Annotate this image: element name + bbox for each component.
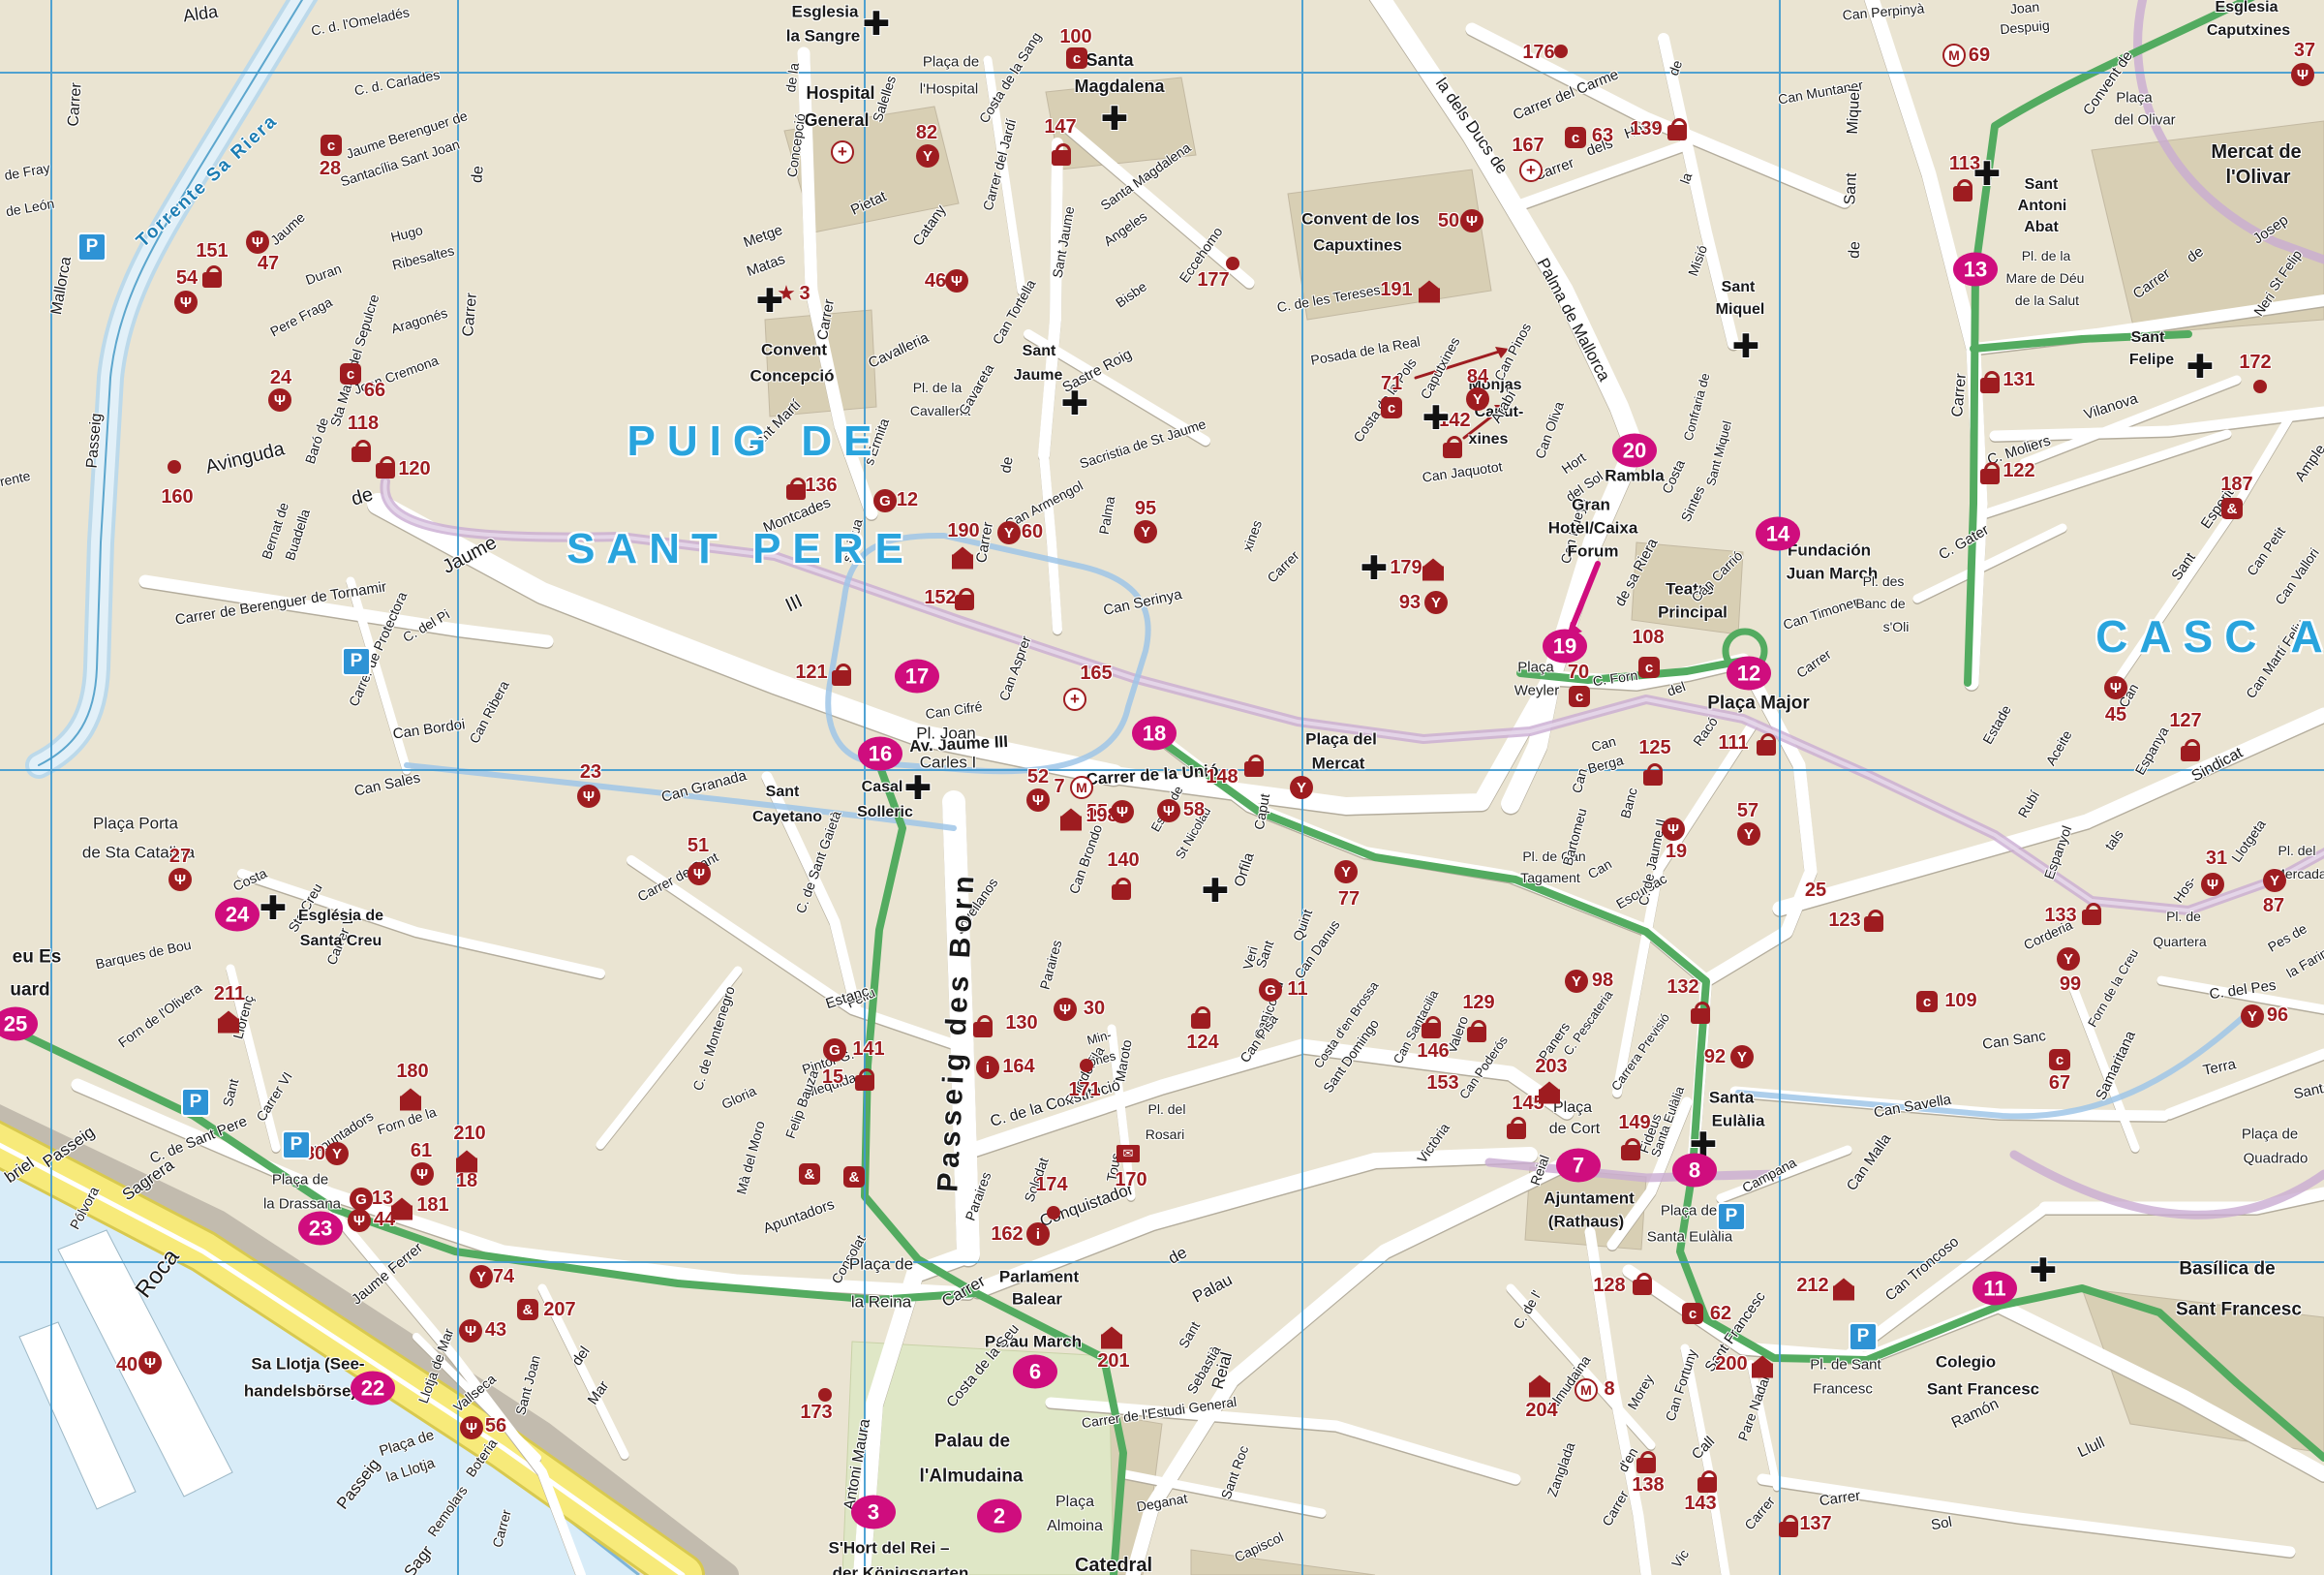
street-label-hos: Hos-: [2171, 874, 2198, 905]
poi-number-7: 7: [1054, 777, 1064, 796]
street-label-carrer: Carrer: [1819, 1489, 1861, 1509]
street-label-santa-magdalena: Santa Magdalena: [1098, 140, 1193, 212]
poi-number-63: 63: [1592, 126, 1613, 145]
house-icon: [1529, 1383, 1550, 1398]
cafe-icon: c: [1916, 991, 1938, 1012]
church-icon: ✚: [1361, 549, 1389, 588]
street-label-felip-bauza: Felip Bauza: [783, 1068, 820, 1140]
street-label-sintes: Sintes: [1678, 483, 1706, 523]
street-label-llotgeta: Llotgeta: [2229, 818, 2268, 865]
street-label-can-sanc: Can Sanc: [1981, 1029, 2046, 1052]
poi-number-172: 172: [2239, 353, 2271, 372]
poi-number-56: 56: [485, 1416, 506, 1436]
landmark-label-casal: Casal: [862, 780, 903, 795]
landmark-label-convent: Convent: [761, 342, 827, 358]
street-label-de-sa-riera: de sa Riera: [1612, 537, 1660, 609]
poi-number-121: 121: [795, 663, 827, 682]
bag-icon: [1621, 1145, 1640, 1160]
street-label-convent-de: Convent de: [2081, 48, 2135, 117]
church-icon: ✚: [1101, 100, 1129, 139]
street-label-can-brondo: Can Brondo: [1067, 822, 1105, 895]
fork-icon: Ψ: [1460, 209, 1483, 232]
wine-icon: Y: [1730, 1045, 1754, 1068]
street-label-matas: Matas: [745, 252, 787, 279]
poi-number-139: 139: [1630, 119, 1662, 139]
bag-icon: [1636, 1458, 1656, 1473]
street-label-despuig: Despuig: [2000, 18, 2050, 36]
landmark-label-antoni: Antoni: [2018, 199, 2067, 214]
med-icon: +: [1519, 159, 1543, 182]
plaza-label-mare-de-d-u: Mare de Déu: [2006, 271, 2085, 285]
street-label-can-ribera: Can Ribera: [467, 678, 511, 745]
cafe-icon: c: [1638, 657, 1660, 678]
poi-number-70: 70: [1568, 663, 1589, 682]
poi-number-152: 152: [924, 588, 956, 607]
poi-number-3: 3: [799, 284, 810, 303]
landmark-label-gran: Gran: [1572, 497, 1610, 513]
poi-number-125: 125: [1638, 738, 1670, 757]
street-label-carrer: Carrer: [66, 82, 84, 127]
poi-number-61: 61: [411, 1141, 432, 1160]
landmark-label-bas-lica-de: Basílica de: [2179, 1260, 2275, 1279]
street-label-carrer: Carrer: [1742, 1494, 1777, 1531]
street-label-can-carri: Can Carrió: [1689, 548, 1745, 604]
street-label-vic: Vic: [1669, 1547, 1691, 1570]
street-label-sant: Sant: [1843, 172, 1860, 205]
poi-number-67: 67: [2049, 1073, 2070, 1093]
street-label-de-le-n: de León: [5, 197, 55, 219]
street-label-carrera-previsi: Carrera Previsió: [1609, 1011, 1672, 1093]
poi-number-174: 174: [1035, 1175, 1067, 1194]
route-badge-24: 24: [215, 898, 260, 932]
info-icon: i: [1026, 1222, 1050, 1246]
poi-number-147: 147: [1044, 117, 1076, 137]
landmark-label-s-hort-del-rei: S'Hort del Rei –: [829, 1540, 950, 1557]
street-label-call: Call: [1690, 1435, 1718, 1463]
poi-number-46: 46: [925, 271, 946, 291]
landmark-label-santa: Santa: [1709, 1090, 1754, 1106]
plaza-label-carles-i: Carles I: [920, 755, 977, 771]
house-icon: [1752, 1364, 1773, 1378]
bag-icon: [1633, 1280, 1652, 1295]
plaza-label-la-drassana: la Drassana: [263, 1197, 341, 1212]
parking-icon: P: [342, 647, 371, 676]
street-label-rub: Rubí: [2016, 788, 2042, 820]
fork-icon: Ψ: [1157, 799, 1180, 822]
bag-icon: [955, 595, 974, 610]
wine-icon: Y: [2057, 947, 2080, 971]
hostel-icon: &: [517, 1299, 538, 1320]
street-label-ribesaltes: Ribesaltes: [391, 243, 456, 271]
landmark-label-balear: Balear: [1012, 1291, 1062, 1308]
hostel-icon: &: [2221, 498, 2243, 519]
street-label-passeig: Passeig: [85, 413, 106, 469]
street-label-sant: Sant: [2169, 550, 2198, 583]
fork-icon: Ψ: [945, 269, 968, 293]
bag-icon: [2082, 910, 2101, 925]
plaza-label-de-la-salut: de la Salut: [2015, 293, 2079, 307]
bag-icon: [1643, 770, 1663, 786]
poi-number-171: 171: [1068, 1080, 1100, 1099]
wine-icon: Y: [1290, 776, 1313, 799]
poi-number-167: 167: [1512, 136, 1544, 155]
street-label-neri: Neri: [2251, 290, 2277, 318]
poi-number-118: 118: [348, 414, 379, 433]
street-label-palma-de-mallorca: Palma de Mallorca: [1534, 256, 1612, 384]
landmark-label-convent-de-los: Convent de los: [1301, 211, 1420, 228]
landmark-label-mercat-de: Mercat de: [2211, 142, 2301, 162]
bag-icon: [202, 272, 222, 288]
guest-icon: G: [350, 1188, 373, 1211]
bag-icon: [1422, 1023, 1441, 1038]
street-label-jaume-ferrer: Jaume Ferrer: [350, 1240, 426, 1307]
street-label-costa-de-la-sang: Costa de la Sang: [977, 30, 1044, 126]
bag-icon: [352, 447, 371, 462]
info-icon: i: [976, 1056, 999, 1079]
street-label-carrer: Carrer: [1600, 1488, 1631, 1528]
landmark-label-santa: Santa: [1086, 51, 1133, 69]
plaza-label-pla-a: Plaça: [1517, 661, 1554, 675]
poi-number-201: 201: [1097, 1351, 1129, 1371]
fork-icon: Ψ: [411, 1162, 434, 1186]
bag-icon: [832, 670, 851, 686]
plaza-label-la-reina: la Reina: [851, 1294, 911, 1311]
poi-number-177: 177: [1197, 270, 1229, 290]
poi-number-133: 133: [2044, 906, 2076, 925]
fork-icon: Ψ: [1111, 800, 1134, 823]
poi-number-170: 170: [1115, 1170, 1147, 1189]
street-label-angeles: Angeles: [1101, 209, 1148, 248]
poi-number-165: 165: [1080, 664, 1112, 683]
church-icon: ✚: [1732, 327, 1760, 366]
bag-icon: [1112, 884, 1131, 900]
street-label-min: Min-: [1086, 1028, 1113, 1046]
route-badge-3: 3: [851, 1496, 896, 1529]
poi-number-122: 122: [2003, 461, 2034, 480]
street-label-de: de: [2185, 244, 2206, 265]
fork-icon: Ψ: [1662, 818, 1685, 841]
poi-number-62: 62: [1710, 1304, 1731, 1323]
street-label-terra: Terra: [2202, 1057, 2238, 1078]
street-label-carrer: Carrer: [1265, 548, 1301, 585]
street-label-de: de: [350, 484, 376, 509]
poi-number-138: 138: [1632, 1475, 1664, 1495]
landmark-label-sant-francesc: Sant Francesc: [1927, 1381, 2039, 1398]
landmark-label-sant: Sant: [1023, 344, 1056, 359]
street-label-hugo: Hugo: [389, 223, 424, 244]
med-icon: +: [1063, 688, 1086, 711]
church-icon: ✚: [863, 5, 891, 44]
street-label-can-oliva: Can Oliva: [1533, 400, 1566, 461]
poi-number-84: 84: [1467, 367, 1488, 386]
street-label-ample: Ample: [2293, 442, 2324, 483]
poi-number-60: 60: [1022, 522, 1043, 541]
fork-icon: Ψ: [577, 785, 600, 808]
cafe-icon: c: [1381, 397, 1402, 418]
church-icon: ✚: [2186, 348, 2215, 386]
landmark-label-principal: Principal: [1658, 604, 1728, 621]
street-label-de-fray: de Fray: [3, 161, 50, 182]
route-badge-11: 11: [1972, 1272, 2017, 1306]
poi-number-173: 173: [800, 1403, 832, 1422]
wine-icon: Y: [916, 144, 939, 168]
street-label-carrer: Carrer: [2130, 266, 2172, 302]
poi-number-153: 153: [1426, 1073, 1458, 1093]
poi-number-141: 141: [852, 1039, 884, 1059]
fork-icon: Ψ: [138, 1351, 162, 1374]
plaza-label-santa-eul-lia: Santa Eulàlia: [1647, 1230, 1732, 1245]
street-label-bisbe: Bisbe: [1114, 279, 1149, 310]
street-label-aceite: Aceite: [2043, 728, 2074, 768]
street-label-caputxines: Caputxines: [1418, 335, 1461, 401]
street-label-sacristia-de-st-jaume: Sacristia de St Jaume: [1078, 417, 1208, 470]
poi-number-77: 77: [1338, 889, 1360, 909]
fork-icon: Ψ: [348, 1209, 371, 1232]
guest-icon: G: [873, 489, 897, 512]
landmark-label-esglesia: Esglesia: [2216, 0, 2278, 15]
street-label-p-lvora: Pólvora: [68, 1185, 102, 1231]
street-label-pietat: Pietat: [848, 189, 888, 218]
cafe-icon: c: [321, 135, 342, 156]
house-icon: [1833, 1286, 1854, 1301]
landmark-label-abat: Abat: [2024, 220, 2059, 235]
street-label-c-pescateria: C. Pescateria: [1561, 988, 1614, 1057]
house-icon: [1101, 1335, 1122, 1349]
street-label-carrer-vi: Carrer VI: [254, 1069, 294, 1124]
landmark-label-xines: xines: [1469, 432, 1509, 448]
street-label-de: de: [998, 455, 1016, 474]
street-label-pes-de: Pes de: [2266, 921, 2309, 954]
street-label-can-jaquotot: Can Jaquotot: [1422, 459, 1503, 483]
street-label-paraires: Paraires: [963, 1170, 994, 1222]
bag-icon: [1980, 378, 2000, 393]
poi-number-212: 212: [1796, 1276, 1828, 1295]
parking-icon: P: [1849, 1322, 1878, 1351]
street-label-iii: III: [782, 591, 806, 615]
street-label-remolars: Remolars: [425, 1483, 470, 1538]
poi-number-71: 71: [1381, 374, 1402, 393]
poi-number-160: 160: [161, 487, 193, 507]
poi-number-127: 127: [2169, 711, 2201, 730]
fork-icon: Ψ: [268, 388, 291, 412]
street-label-c-del-pi: C. del Pi: [401, 607, 452, 645]
plaza-label-la-llotja: la Llotja: [384, 1456, 437, 1485]
bag-icon: [1691, 1008, 1710, 1024]
street-label-palma: Palma: [1097, 495, 1117, 536]
poi-number-30: 30: [1084, 999, 1105, 1018]
street-label-can-cifr: Can Cifré: [925, 699, 984, 721]
street-label-palau: Palau: [1190, 1271, 1235, 1305]
street-label-barques-de-bou: Barques de Bou: [94, 938, 192, 972]
bag-icon: [1953, 186, 1972, 201]
street-label-quint: Quint: [1291, 908, 1315, 942]
church-icon: ✚: [260, 889, 288, 928]
house-icon: [952, 555, 973, 570]
poi-number-51: 51: [688, 836, 709, 855]
street-label-c-del-pes: C. del Pes: [2209, 978, 2278, 1002]
city-map-canvas[interactable]: AldaC. d. l'OmeladésC. d. CarladesCarrer…: [0, 0, 2324, 1575]
street-label-can-timoner: Can Timoner: [1782, 595, 1860, 632]
street-label-llotja-de-mar: Llotja de Mar: [416, 1327, 456, 1405]
street-label-cavalleria: Cavalleria: [867, 330, 932, 371]
landmark-label-handelsb-rse: handelsbörse): [244, 1383, 356, 1400]
poi-number-37: 37: [2294, 41, 2315, 60]
landmark-label-parlament: Parlament: [999, 1269, 1079, 1285]
street-label-carrer-de-berenguer-de-tornamir: Carrer de Berenguer de Tornamir: [174, 579, 387, 627]
poi-number-95: 95: [1135, 499, 1156, 518]
poi-number-146: 146: [1417, 1041, 1449, 1061]
street-label-catany: Catany: [910, 202, 949, 249]
landmark-label-l-almudaina: l'Almudaina: [920, 1467, 1024, 1486]
poi-number-123: 123: [1828, 911, 1860, 930]
street-label-briel: briel: [2, 1155, 37, 1186]
landmark-label-sant: Sant: [766, 785, 800, 800]
street-label-vilanova: Vilanova: [2082, 391, 2139, 422]
street-label-sol: Sol: [1930, 1515, 1953, 1533]
poi-number-93: 93: [1399, 593, 1421, 612]
route-badge-2: 2: [977, 1499, 1022, 1533]
street-label-sant: Sant: [221, 1077, 241, 1107]
poi-number-129: 129: [1462, 993, 1494, 1012]
house-icon: [1060, 817, 1082, 831]
street-label-c-de-les-tereses: C. de les Tereses: [1276, 283, 1382, 315]
poi-number-207: 207: [543, 1300, 575, 1319]
plaza-label-pla-a-de: Plaça de: [923, 55, 979, 70]
street-label-passeig: Passeig: [334, 1456, 383, 1512]
street-label-st-felip: St Felip: [2267, 248, 2305, 293]
landmark-label-caputxines: Caputxines: [2207, 23, 2290, 39]
landmark-label-capuxtines: Capuxtines: [1313, 237, 1402, 254]
poi-number-149: 149: [1618, 1113, 1650, 1132]
fork-icon: Ψ: [174, 291, 198, 314]
dot-icon: [1554, 45, 1568, 58]
poi-number-92: 92: [1704, 1047, 1726, 1066]
street-label-del: del: [569, 1343, 593, 1368]
poi-number-100: 100: [1059, 27, 1091, 46]
poi-number-136: 136: [805, 476, 837, 495]
fork-icon: Ψ: [460, 1416, 483, 1439]
wine-icon: Y: [1737, 822, 1760, 846]
poi-number-40: 40: [116, 1355, 138, 1374]
street-label-duran: Duran: [304, 262, 344, 287]
street-label-carrer: Carrer: [815, 298, 837, 341]
wine-icon: Y: [1565, 970, 1588, 993]
landmark-label-jaume: Jaume: [1014, 368, 1063, 384]
street-label-de: de: [470, 165, 486, 183]
street-label-ram-n: Ramón: [1949, 1397, 2002, 1432]
street-label-can: Can: [1585, 857, 1613, 881]
street-label-vict-ria: Victòria: [1415, 1121, 1452, 1165]
street-label-de: de: [1848, 241, 1864, 260]
street-label-can-savella: Can Savella: [1873, 1093, 1952, 1121]
street-label-c-de-montenegro: C. de Montenegro: [690, 985, 737, 1093]
landmark-label-l-olivar: l'Olivar: [2225, 168, 2290, 187]
street-label-santa: Santa: [2292, 1080, 2324, 1102]
route-badge-8: 8: [1672, 1154, 1717, 1188]
house-icon: [218, 1019, 239, 1034]
street-label-jaume: Jaume: [440, 533, 500, 577]
metro-icon: M: [1070, 776, 1093, 799]
plaza-label-pla-a: Plaça: [1055, 1495, 1094, 1510]
street-label-espanya: Espanya: [2132, 725, 2170, 777]
fork-icon: Ψ: [2291, 63, 2314, 86]
street-label-vallseca: Vallseca: [451, 1372, 499, 1414]
street-label-c-de-l: C. de l': [1511, 1288, 1544, 1331]
street-label-miquel: Miquel: [1846, 88, 1863, 135]
landmark-label-sant: Sant: [2025, 177, 2059, 193]
street-label-gloria: Gloria: [719, 1084, 758, 1111]
street-label-c-de-la-constituci: C. de la Constitució: [989, 1078, 1122, 1130]
poi-number-47: 47: [258, 254, 279, 273]
plaza-label-s-oli: s'Oli: [1883, 620, 1910, 633]
poi-number-164: 164: [1002, 1057, 1034, 1076]
route-badge-25: 25: [0, 1007, 38, 1041]
church-icon: ✚: [1061, 385, 1089, 423]
street-label-tals: tals: [2102, 827, 2125, 852]
wine-icon: Y: [1334, 860, 1358, 883]
poi-number-162: 162: [991, 1224, 1023, 1244]
poi-number-137: 137: [1799, 1514, 1831, 1533]
landmark-label-esglesia: Esglesia: [792, 4, 859, 20]
poi-number-130: 130: [1005, 1013, 1037, 1033]
church-icon: ✚: [1422, 399, 1451, 438]
street-label-morey: Morey: [1625, 1373, 1656, 1412]
plaza-label-pl-del: Pl. del: [2278, 844, 2316, 857]
street-label-pare-nadal: Pare Nadal: [1735, 1374, 1771, 1443]
street-label-can-bordoi: Can Bordoi: [392, 717, 466, 741]
landmark-label-esgl-sia-de: Església de: [298, 909, 383, 924]
street-label-c-d-carlades: C. d. Carlades: [353, 68, 442, 98]
poi-number-69: 69: [1969, 46, 1990, 65]
street-label-la-farina: la Farina: [2284, 942, 2324, 979]
street-label-sagr: Sagr: [401, 1543, 436, 1575]
bag-icon: [786, 484, 806, 500]
street-label-pere-fraga: Pere Fraga: [268, 294, 334, 338]
poi-number-96: 96: [2267, 1005, 2288, 1025]
plaza-label-pl-de-sant: Pl. de Sant: [1810, 1358, 1881, 1373]
street-label-sant: Sant: [1177, 1319, 1203, 1350]
landmark-label-forum: Forum: [1568, 543, 1619, 560]
poi-number-200: 200: [1715, 1354, 1747, 1374]
street-label-samaritana: Samaritana: [2094, 1029, 2138, 1102]
bag-icon: [1980, 469, 2000, 484]
street-label-forn-de-la-creu: Forn de la Creu: [2086, 947, 2140, 1030]
street-label-can-malla: Can Malla: [1844, 1131, 1893, 1193]
poi-number-27: 27: [169, 847, 191, 866]
cafe-icon: c: [1565, 127, 1586, 148]
bag-icon: [1779, 1522, 1798, 1537]
street-label-banc: Banc: [1618, 787, 1639, 819]
poi-number-52: 52: [1027, 767, 1049, 787]
landmark-label-sa-llotja-see: Sa Llotja (See-: [251, 1356, 364, 1373]
street-label-sant-jaume: Sant Jaume: [1051, 205, 1077, 279]
poi-number-120: 120: [398, 459, 430, 479]
bag-icon: [1697, 1477, 1717, 1493]
landmark-label-concepci: Concepció: [750, 368, 835, 385]
bag-icon: [855, 1075, 874, 1091]
poi-number-25: 25: [1805, 880, 1826, 900]
cafe-icon: c: [340, 363, 361, 385]
street-label-reial: Reial: [1528, 1154, 1551, 1188]
landmark-label-sant-francesc: Sant Francesc: [2176, 1301, 2302, 1319]
church-icon: ✚: [756, 282, 784, 321]
poi-number-210: 210: [453, 1124, 485, 1143]
poi-number-131: 131: [2003, 370, 2034, 389]
med-icon: +: [831, 140, 854, 164]
plaza-label-pla-a-de: Plaça de: [272, 1173, 328, 1188]
landmark-label-colegio: Colegio: [1936, 1354, 1996, 1371]
dot-icon: [2253, 380, 2267, 393]
